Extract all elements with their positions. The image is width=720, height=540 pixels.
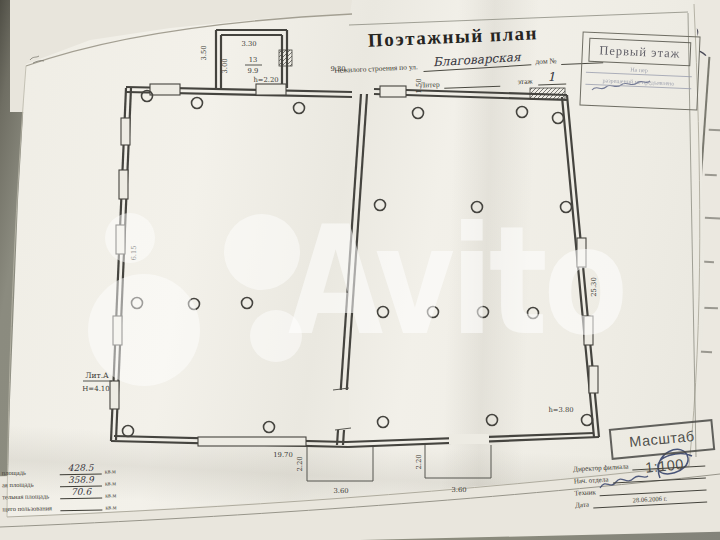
hatched-wall-section: [279, 50, 292, 66]
area-unit: кв.м: [105, 480, 116, 486]
area-value: 70.6: [60, 486, 102, 499]
area-value: [60, 498, 102, 511]
dimension-label: h=2.20: [253, 76, 278, 84]
liter-blank: [444, 77, 500, 89]
dimension-label: 3.50: [200, 45, 208, 60]
column-marker: [517, 107, 528, 118]
area-label: площадь: [2, 468, 60, 476]
column-marker: [189, 299, 200, 310]
door-opening: [449, 434, 489, 444]
dimension-label: Лит.А: [85, 371, 109, 380]
column-marker: [123, 426, 134, 437]
window-marker: [121, 118, 130, 145]
dimension-label: 3.00: [221, 58, 229, 73]
stamp-note-line1: На пер: [586, 65, 692, 78]
area-label: щего пользования: [2, 504, 60, 512]
dimension-label: 3.30: [241, 40, 256, 48]
dimension-label: 3.60: [451, 486, 466, 494]
window-marker: [119, 170, 128, 199]
area-value: 358.9: [60, 474, 102, 487]
photo-scene: 3.303.503.00139.9h=2.209.301.506.1525.30…: [0, 0, 720, 540]
liter-label: Литер: [420, 80, 440, 90]
column-marker: [553, 113, 564, 124]
window-marker: [256, 84, 286, 95]
dimension-label: Н=4.10: [82, 385, 110, 393]
window-marker: [113, 316, 122, 345]
column-marker: [478, 307, 489, 318]
column-marker: [487, 415, 498, 426]
page-curl-edge: [26, 14, 352, 66]
window-marker: [380, 86, 406, 97]
area-unit: кв.м: [105, 468, 116, 474]
window-marker: [198, 437, 306, 446]
column-marker: [378, 307, 389, 318]
window-marker: [116, 225, 125, 254]
window-marker: [577, 238, 586, 267]
column-marker: [472, 202, 483, 213]
column-marker: [264, 422, 275, 433]
stamp-box: Первый этаж На пер разрешений не предъяв…: [579, 31, 700, 110]
column-marker: [378, 417, 389, 428]
window-marker: [584, 316, 593, 345]
area-value: 428.5: [60, 462, 102, 475]
column-marker: [242, 298, 253, 309]
area-label: ая площадь: [2, 480, 60, 488]
column-marker: [132, 298, 143, 309]
house-label: дом №: [535, 56, 557, 66]
first-floor-stamp: Первый этаж: [588, 38, 691, 66]
dimension-label: 9.9: [248, 67, 259, 75]
column-marker: [561, 202, 572, 213]
hatched-wall-section: [530, 88, 565, 99]
door-opening: [335, 390, 349, 430]
dimension-label: 2.20: [296, 456, 304, 471]
signature-block: Директор филиала Нач. отдела Техник Дата…: [573, 455, 707, 510]
area-unit: кв.м: [105, 492, 116, 498]
column-marker: [413, 108, 424, 119]
dimension-label: 25.30: [590, 277, 598, 296]
dimension-label: 19.70: [273, 451, 292, 459]
sheet-left-edge: [7, 66, 26, 517]
column-marker: [192, 98, 203, 109]
area-unit: кв.м: [105, 504, 116, 510]
column-marker: [528, 308, 539, 319]
window-marker: [589, 366, 598, 393]
signature-label: Дата: [575, 501, 589, 510]
signature-label: Техник: [574, 488, 596, 497]
dimension-label: h=3.80: [548, 406, 573, 414]
floor-label: этаж: [517, 77, 532, 87]
window-marker: [110, 381, 119, 409]
stamp-note: На пер разрешений не предъявлено: [585, 65, 692, 94]
area-row: щего пользования кв.м: [2, 499, 137, 512]
dimension-label: 3.60: [333, 487, 348, 495]
window-marker: [150, 84, 180, 95]
column-marker: [582, 415, 593, 426]
column-marker: [428, 307, 439, 318]
dimension-label: 13: [249, 56, 258, 64]
dimension-label: 2.20: [415, 454, 423, 469]
stamp-note-line3: разрешений не предъявлено: [585, 77, 691, 90]
areas-table: площадь 428.5 кв.м ая площадь 358.9 кв.м…: [2, 463, 138, 513]
floor-value: 1: [537, 69, 566, 85]
area-label: тельная площадь: [2, 492, 60, 500]
dimension-label: 6.15: [130, 245, 138, 260]
column-marker: [375, 200, 386, 211]
column-marker: [294, 103, 305, 114]
